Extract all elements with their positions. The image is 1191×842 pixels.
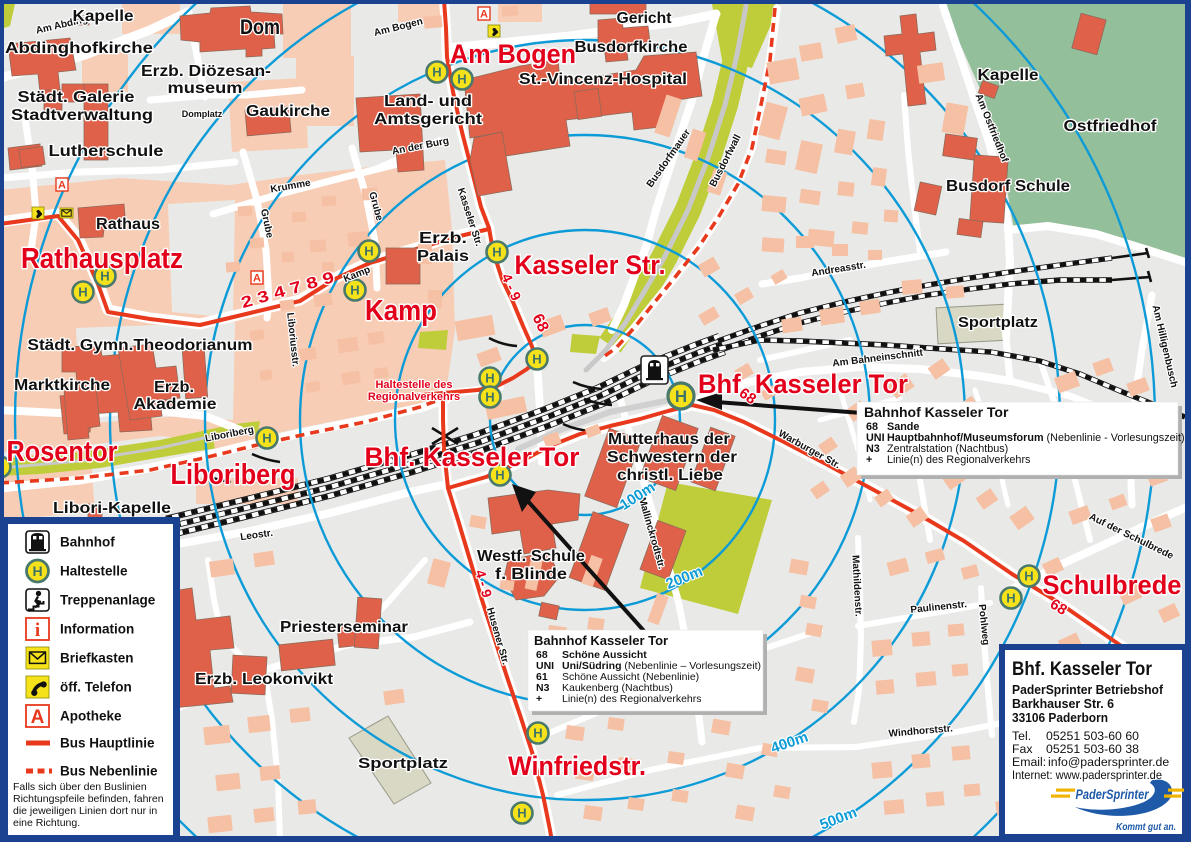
svg-text:Am Bogen: Am Bogen [450, 39, 576, 69]
svg-text:museum: museum [168, 80, 243, 97]
svg-text:H: H [262, 431, 271, 446]
svg-text:Kapelle: Kapelle [978, 67, 1039, 84]
svg-text:A: A [480, 9, 488, 21]
svg-text:Bus Hauptlinie: Bus Hauptlinie [60, 736, 155, 751]
svg-text:Westf. Schule: Westf. Schule [477, 548, 585, 565]
svg-text:f. Blinde: f. Blinde [495, 566, 567, 583]
svg-text:Bahnhof Kasseler Tor: Bahnhof Kasseler Tor [534, 633, 668, 648]
svg-text:Erzb. Leokonvikt: Erzb. Leokonvikt [195, 671, 334, 688]
svg-text:H: H [1006, 591, 1015, 606]
svg-text:Email:: Email: [1012, 755, 1046, 769]
svg-text:Bahnhof Kasseler Tor: Bahnhof Kasseler Tor [864, 404, 1009, 420]
svg-text:Städt. Gymn.Theodorianum: Städt. Gymn.Theodorianum [28, 337, 253, 354]
svg-text:Mutterhaus der: Mutterhaus der [608, 431, 730, 448]
svg-text:Rathaus: Rathaus [96, 216, 160, 233]
svg-text:Linie(n) des Regionalverkehrs: Linie(n) des Regionalverkehrs [562, 693, 702, 705]
svg-text:+: + [866, 454, 872, 466]
svg-text:H: H [533, 726, 542, 741]
svg-text:Schulbrede: Schulbrede [1043, 570, 1182, 600]
svg-text:H: H [1024, 569, 1033, 584]
svg-text:Rathausplatz: Rathausplatz [21, 243, 183, 275]
svg-text:Erzb. Diözesan-: Erzb. Diözesan- [141, 63, 271, 80]
svg-text:Sportplatz: Sportplatz [958, 314, 1038, 331]
svg-text:Kommt gut an.: Kommt gut an. [1116, 821, 1176, 833]
svg-text:Rosentor: Rosentor [7, 436, 118, 468]
svg-text:Kasseler Str.: Kasseler Str. [515, 250, 666, 280]
svg-text:Ostfriedhof: Ostfriedhof [1064, 118, 1158, 135]
svg-text:Richtungspfeile befinden, fahr: Richtungspfeile befinden, fahren [13, 793, 164, 805]
svg-text:H: H [492, 245, 501, 260]
svg-text:05251 503-60 60: 05251 503-60 60 [1046, 729, 1139, 743]
svg-text:H: H [675, 387, 687, 406]
svg-text:H: H [517, 806, 526, 821]
svg-text:Libori-Kapelle: Libori-Kapelle [53, 500, 171, 517]
svg-text:Fax: Fax [1012, 742, 1033, 756]
svg-text:A: A [58, 180, 66, 192]
svg-text:H: H [32, 563, 42, 579]
svg-text:H: H [485, 371, 494, 386]
svg-text:Lutherschule: Lutherschule [49, 143, 164, 160]
svg-text:Treppenanlage: Treppenanlage [60, 593, 156, 608]
svg-text:+: + [536, 693, 542, 705]
svg-text:H: H [432, 65, 441, 80]
svg-text:Barkhauser Str. 6: Barkhauser Str. 6 [1012, 696, 1114, 711]
svg-text:A: A [31, 707, 45, 728]
svg-text:Liboriberg: Liboriberg [171, 459, 296, 491]
svg-text:H: H [457, 72, 466, 87]
svg-text:Marktkirche: Marktkirche [14, 377, 110, 394]
svg-text:Kamp: Kamp [365, 295, 437, 327]
svg-text:PaderSprinter: PaderSprinter [1076, 787, 1150, 802]
svg-text:Sportplatz: Sportplatz [358, 755, 448, 772]
svg-text:Abdinghofkirche: Abdinghofkirche [5, 40, 153, 57]
svg-text:H: H [78, 285, 87, 300]
svg-text:PaderSprinter Betriebshof: PaderSprinter Betriebshof [1012, 682, 1164, 697]
svg-text:Haltestelle des: Haltestelle des [375, 379, 452, 391]
svg-text:Falls sich über den Buslinien: Falls sich über den Buslinien [13, 781, 147, 793]
svg-text:Information: Information [60, 622, 134, 637]
svg-text:Bus Nebenlinie: Bus Nebenlinie [60, 764, 158, 779]
svg-text:Akademie: Akademie [134, 396, 217, 413]
svg-text:Regionalverkehrs: Regionalverkehrs [368, 391, 460, 403]
svg-text:Internet: www.padersprinter.de: Internet: www.padersprinter.de [1012, 768, 1162, 782]
svg-text:Bhf. Kasseler Tor: Bhf. Kasseler Tor [1012, 659, 1153, 680]
svg-text:Städt. Galerie: Städt. Galerie [18, 89, 135, 106]
svg-text:St.-Vincenz-Hospital: St.-Vincenz-Hospital [519, 71, 687, 88]
svg-text:Dom: Dom [240, 16, 280, 39]
svg-text:Bhf. Kasseler Tor: Bhf. Kasseler Tor [698, 369, 908, 399]
svg-text:christl. Liebe: christl. Liebe [617, 467, 723, 484]
svg-text:H: H [532, 352, 541, 367]
svg-text:H: H [350, 283, 359, 298]
svg-text:info@padersprinter.de: info@padersprinter.de [1048, 755, 1169, 769]
svg-text:Busdorfkirche: Busdorfkirche [575, 39, 688, 56]
svg-text:Domplatz: Domplatz [182, 109, 223, 119]
svg-text:Gaukirche: Gaukirche [246, 103, 330, 120]
svg-text:H: H [485, 390, 494, 405]
svg-text:Bahnhof: Bahnhof [60, 535, 115, 550]
svg-text:öff. Telefon: öff. Telefon [60, 680, 132, 695]
svg-text:Haltestelle: Haltestelle [60, 564, 128, 579]
svg-text:Erzb.: Erzb. [419, 230, 467, 247]
svg-text:A: A [253, 273, 261, 285]
svg-text:Busdorf Schule: Busdorf Schule [946, 178, 1070, 195]
svg-text:Kapelle: Kapelle [73, 8, 134, 25]
svg-text:Briefkasten: Briefkasten [60, 651, 134, 666]
svg-text:Bhf. Kasseler Tor: Bhf. Kasseler Tor [365, 442, 580, 472]
svg-text:i: i [35, 620, 40, 641]
svg-text:Palais: Palais [417, 248, 469, 265]
svg-text:die jeweiligen Linien dort nur: die jeweiligen Linien dort nur in [13, 805, 157, 817]
svg-text:Apotheke: Apotheke [60, 709, 122, 724]
svg-text:Priesterseminar: Priesterseminar [280, 619, 408, 636]
svg-text:eine Richtung.: eine Richtung. [13, 817, 80, 829]
svg-text:33106 Paderborn: 33106 Paderborn [1012, 710, 1108, 725]
svg-text:Land- und: Land- und [384, 93, 472, 110]
svg-text:05251 503-60 38: 05251 503-60 38 [1046, 742, 1139, 756]
svg-text:H: H [364, 244, 373, 259]
svg-text:Linie(n) des Regionalverkehrs: Linie(n) des Regionalverkehrs [887, 454, 1031, 466]
svg-text:Tel.: Tel. [1012, 729, 1031, 743]
svg-text:Stadtverwaltung: Stadtverwaltung [11, 107, 153, 124]
svg-text:Amtsgericht: Amtsgericht [374, 111, 483, 128]
svg-text:Erzb.: Erzb. [154, 379, 194, 396]
svg-text:Schwestern der: Schwestern der [607, 449, 737, 466]
svg-text:Winfriedstr.: Winfriedstr. [508, 751, 646, 781]
svg-text:Gericht: Gericht [617, 10, 673, 27]
